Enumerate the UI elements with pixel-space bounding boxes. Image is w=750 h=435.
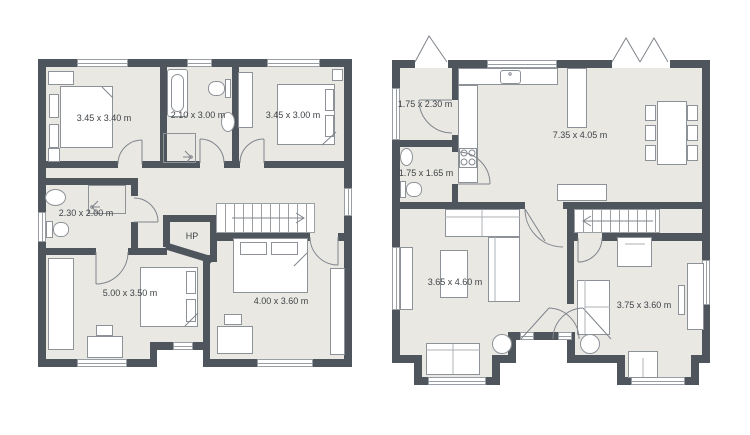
wall	[400, 140, 452, 147]
exterior-notch	[516, 340, 567, 363]
wall	[567, 355, 617, 363]
wall	[567, 233, 578, 241]
door-opening	[612, 60, 670, 68]
wall	[224, 161, 240, 168]
window	[392, 88, 400, 140]
pillow	[271, 242, 298, 255]
dining-chair	[645, 125, 656, 141]
window	[173, 342, 193, 350]
room-label-bedroom-2: 3.45 x 3.00 m	[266, 110, 321, 120]
shower	[163, 133, 196, 163]
nightstand	[332, 69, 343, 81]
window	[487, 60, 557, 68]
room-label-living: 3.65 x 4.60 m	[428, 277, 483, 287]
wall	[338, 233, 344, 241]
wall	[691, 355, 710, 363]
dining-chair	[687, 125, 698, 141]
room-label-bathroom-2: 2.30 x 2.00 m	[59, 208, 114, 218]
window	[392, 247, 400, 310]
pillow	[49, 94, 59, 118]
toilet	[406, 182, 422, 197]
bay-armchair	[628, 351, 658, 378]
sofa	[577, 280, 610, 335]
window	[267, 59, 320, 67]
room-label-bathroom-1: 2.10 x 3.00 m	[171, 110, 226, 120]
dining-chair	[645, 145, 656, 161]
wall	[400, 202, 525, 209]
dining-chair	[687, 145, 698, 161]
bay-sofa	[426, 343, 480, 375]
shelf	[400, 247, 413, 310]
wardrobe	[48, 71, 74, 85]
wardrobe	[238, 72, 253, 128]
room-label-bedroom-4: 4.00 x 3.60 m	[254, 296, 309, 306]
wall	[392, 355, 414, 363]
pillow	[49, 124, 59, 148]
toilet	[53, 222, 69, 237]
kitchen-counter	[458, 85, 478, 183]
pillow	[325, 115, 334, 137]
side-table	[580, 334, 600, 354]
sink	[45, 189, 66, 206]
wall	[567, 209, 574, 304]
desk	[687, 263, 704, 330]
wall	[46, 248, 96, 255]
kitchen-sink	[500, 70, 521, 84]
toilet	[208, 81, 225, 96]
room-label-hp-closet: HP	[186, 231, 199, 241]
coffee-table	[440, 250, 468, 298]
window	[257, 359, 313, 367]
sofa	[445, 209, 520, 237]
wall	[563, 202, 702, 209]
entry-door-swing	[415, 36, 447, 62]
toilet-tank	[46, 221, 53, 238]
window	[428, 377, 486, 385]
chair	[224, 314, 242, 325]
sink	[400, 148, 413, 166]
window	[520, 332, 534, 340]
wardrobe	[48, 258, 74, 350]
staircase	[216, 203, 315, 233]
desk	[87, 336, 123, 358]
window	[77, 359, 127, 367]
pillow	[186, 271, 196, 294]
wall	[163, 215, 217, 222]
window	[558, 332, 572, 340]
pillow	[325, 89, 334, 111]
kitchen-island	[567, 68, 587, 128]
window	[631, 377, 685, 385]
wall	[46, 161, 118, 168]
room-label-study: 3.75 x 3.60 m	[617, 300, 672, 310]
room-label-bedroom-3: 5.00 x 3.50 m	[103, 288, 158, 298]
dining-chair	[645, 105, 656, 121]
door-opening	[415, 60, 448, 68]
room-label-hallway: 1.75 x 2.30 m	[398, 99, 453, 109]
wall	[163, 215, 170, 247]
kitchen-counter	[557, 184, 607, 201]
side-table	[492, 334, 512, 354]
chair	[96, 325, 113, 336]
wall	[203, 255, 210, 350]
pillow	[240, 242, 267, 255]
wall	[264, 161, 344, 168]
window	[77, 59, 128, 67]
french-door-swing	[612, 38, 668, 62]
stove	[459, 148, 477, 168]
pillow	[186, 299, 196, 322]
room-label-bedroom-1: 3.45 x 3.40 m	[77, 113, 132, 123]
window	[344, 188, 352, 216]
dining-chair	[687, 105, 698, 121]
wall	[131, 178, 138, 196]
wardrobe	[330, 268, 345, 355]
wall	[46, 178, 131, 185]
toilet-tank	[225, 79, 231, 98]
room-label-wc: 1.75 x 1.65 m	[399, 168, 454, 178]
desk	[217, 326, 253, 354]
exterior-notch	[157, 350, 203, 360]
floor-plan-canvas: 3.45 x 3.40 m 2.10 x 3.00 m 3.45 x 3.00 …	[0, 0, 750, 435]
bathtub-basin	[171, 74, 184, 112]
dresser	[48, 148, 60, 162]
wall	[128, 248, 167, 255]
window	[187, 59, 212, 67]
window	[38, 212, 46, 242]
dining-table	[657, 101, 687, 165]
wall	[150, 342, 157, 367]
chair	[678, 285, 685, 315]
room-label-kitchen: 7.35 x 4.05 m	[553, 130, 608, 140]
sofa-chaise	[488, 237, 520, 302]
armchair	[617, 237, 652, 267]
wall	[452, 184, 458, 202]
staircase	[574, 209, 660, 233]
